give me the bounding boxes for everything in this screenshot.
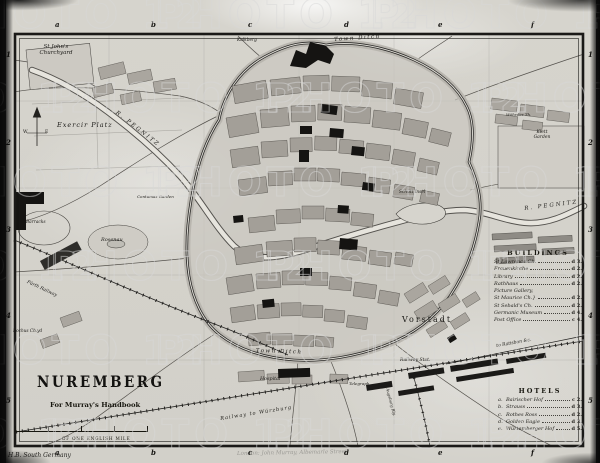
grid-col-top-c: c [248, 20, 252, 29]
grid-row-right-1: 1 [588, 50, 593, 59]
building-ref: d 2. [572, 274, 582, 281]
grid-row-right-4: 4 [588, 311, 593, 320]
scale-tick [48, 426, 49, 432]
label-schuett-insel: Schütt Insel [399, 191, 425, 196]
leader-dots [520, 284, 569, 285]
map-subtitle: For Murray's Handbook [50, 401, 140, 409]
grid-col-bottom-b: b [151, 448, 156, 457]
label-telegraph: Telegraph [349, 382, 369, 387]
leader-dots [538, 262, 569, 263]
map-title: NUREMBERG [37, 373, 165, 391]
imprint-publisher-region: H.B. South Germany [8, 452, 71, 459]
building-entry: Rathhausd 2. [494, 281, 582, 288]
building-entry: Frauenkirched 2. [494, 266, 582, 273]
grid-col-top-d: d [344, 20, 349, 29]
scale-tick [15, 426, 16, 432]
label-town-ditch-bottom: Town Ditch [256, 348, 303, 356]
grid-col-top-e: e [438, 20, 442, 29]
buildings-legend: BUILDINGS St Lawrence Ch.d 3.Frauenkirch… [494, 249, 582, 324]
label-railway-furth: Fürth Railway [26, 280, 58, 298]
label-klett-line2: Garden [524, 135, 560, 140]
hotel-entry: a.Bairischer Hofc 2. [498, 397, 582, 404]
building-ref: d 4. [572, 310, 582, 317]
leader-dots [538, 298, 570, 299]
label-hospital: Hospital [260, 377, 280, 383]
hotel-entry: c.Rothes Rossd 2. [498, 412, 582, 419]
label-railway-stat: Railway Stat. [400, 358, 430, 363]
grid-row-left-2: 2 [6, 138, 11, 147]
label-railway-wurzburg: Railway to Würzburg [220, 406, 293, 423]
hotel-entry: e.Würtemberger Hofd 5. [498, 426, 582, 433]
grid-row-left-3: 3 [6, 225, 11, 234]
hotel-key: e. [498, 426, 506, 433]
hotel-key: a. [498, 397, 506, 404]
label-rosenau: Rosenau [101, 238, 123, 244]
hotel-ref: d 2. [572, 412, 582, 419]
compass-east-label: E [45, 130, 48, 135]
hotel-ref: d 3. [572, 419, 582, 426]
scale-label: OF ONE ENGLISH MILE [62, 436, 131, 441]
grid-row-left-1: 1 [6, 50, 11, 59]
leader-dots [527, 407, 569, 408]
label-augsburg-railway: Augsburg Rly. [385, 388, 397, 416]
building-ref: d 2. [572, 295, 582, 302]
label-railway-ratisbon: to Ratisbon &c. [496, 338, 532, 349]
leader-dots [544, 313, 569, 314]
grid-row-left-5: 5 [6, 396, 11, 405]
grid-col-top-a: a [55, 20, 60, 29]
building-entry: St Lawrence Ch.d 3. [494, 259, 582, 266]
map-photo: St John's Churchyard Exercir Platz Rosen… [0, 0, 600, 463]
building-ref: d 3. [572, 259, 582, 266]
grid-col-bottom-e: e [438, 448, 442, 457]
buildings-legend-title: BUILDINGS [494, 249, 582, 257]
building-entry: Germanic Museumd 4. [494, 310, 582, 317]
label-contumaz-garden: Contumaz Garden [137, 195, 174, 200]
building-entry: Libraryd 2. [494, 274, 582, 281]
label-klett-garden: Klett Garden [524, 130, 560, 140]
hotel-name: Rothes Ross [506, 412, 537, 419]
hotel-name: Golden Eagle [506, 419, 540, 426]
label-vorstadt: Vorstadt [402, 315, 452, 324]
leader-dots [542, 422, 570, 423]
scale-tick [81, 426, 82, 432]
building-name: St Maurice Ch.} [494, 295, 536, 302]
label-wohrder-thor: Wöhrder Th. [506, 113, 531, 118]
label-st-johns: St John's Churchyard [24, 44, 88, 57]
hotel-ref: c 2. [572, 397, 582, 404]
building-ref: c 4. [572, 317, 582, 324]
grid-row-left-4: 4 [6, 311, 11, 320]
hotel-ref: d 3. [572, 404, 582, 411]
grid-row-right-3: 3 [588, 225, 593, 234]
grid-col-bottom-f: f [531, 448, 534, 457]
leader-dots [545, 400, 570, 401]
label-pegnitz-east: R. PEGNITZ [524, 199, 579, 212]
buildings-legend-rows: St Lawrence Ch.d 3.Frauenkirched 2.Libra… [494, 259, 582, 324]
label-town-ditch-top: Town Ditch [334, 34, 381, 44]
hotels-legend: HOTELS a.Bairischer Hofc 2.b.Straussd 3.… [498, 387, 582, 433]
building-name: Germanic Museum [494, 310, 542, 317]
grid-col-top-b: b [151, 20, 156, 29]
label-rochus-churchyard: Rochus Ch.yd [13, 329, 42, 334]
building-name: Picture Gallery, [494, 288, 533, 295]
hotels-legend-title: HOTELS [498, 387, 582, 395]
hotel-name: Bairischer Hof [506, 397, 543, 404]
leader-dots [515, 277, 570, 278]
hotel-key: c. [498, 412, 506, 419]
grid-col-top-f: f [531, 20, 534, 29]
leader-dots [530, 269, 569, 270]
scale-bar [15, 426, 148, 434]
grid-row-right-5: 5 [588, 396, 593, 405]
building-entry: St Maurice Ch.}d 2. [494, 295, 582, 302]
building-ref: d 2. [572, 303, 582, 310]
building-ref: d 2. [572, 266, 582, 273]
leader-dots [539, 415, 570, 416]
building-name: St Sebald's Ch. [494, 303, 533, 310]
hotel-name: Strauss [506, 404, 525, 411]
leader-dots [556, 429, 569, 430]
hotel-entry: b.Straussd 3. [498, 404, 582, 411]
building-ref: d 2. [572, 281, 582, 288]
hotels-legend-rows: a.Bairischer Hofc 2.b.Straussd 3.c.Rothe… [498, 397, 582, 433]
label-kalkberg: Kalkberg [237, 39, 257, 44]
hotel-key: b. [498, 404, 506, 411]
scale-tick [147, 426, 148, 432]
building-name: Library [494, 274, 513, 281]
label-exercir-platz: Exercir Platz [57, 122, 113, 129]
hotel-entry: d.Golden Eagled 3. [498, 419, 582, 426]
hotel-key: d. [498, 419, 506, 426]
hotel-ref: d 5. [572, 426, 582, 433]
building-entry: Post Officec 4. [494, 317, 582, 324]
building-entry: Picture Gallery, [494, 288, 582, 295]
building-name: St Lawrence Ch. [494, 259, 536, 266]
building-name: Post Office [494, 317, 521, 324]
building-entry: St Sebald's Ch.d 2. [494, 303, 582, 310]
label-barracks: Barracks [26, 221, 46, 226]
building-name: Rathhaus [494, 281, 518, 288]
label-pegnitz-west: R. PEGNITZ [114, 110, 161, 148]
label-st-johns-line2: Churchyard [24, 50, 88, 56]
leader-dots [535, 306, 570, 307]
building-name: Frauenkirche [494, 266, 528, 273]
leader-dots [523, 320, 570, 321]
grid-row-right-2: 2 [588, 138, 593, 147]
hotel-name: Würtemberger Hof [506, 426, 554, 433]
compass-west-label: W [23, 130, 28, 135]
scale-tick [114, 426, 115, 432]
